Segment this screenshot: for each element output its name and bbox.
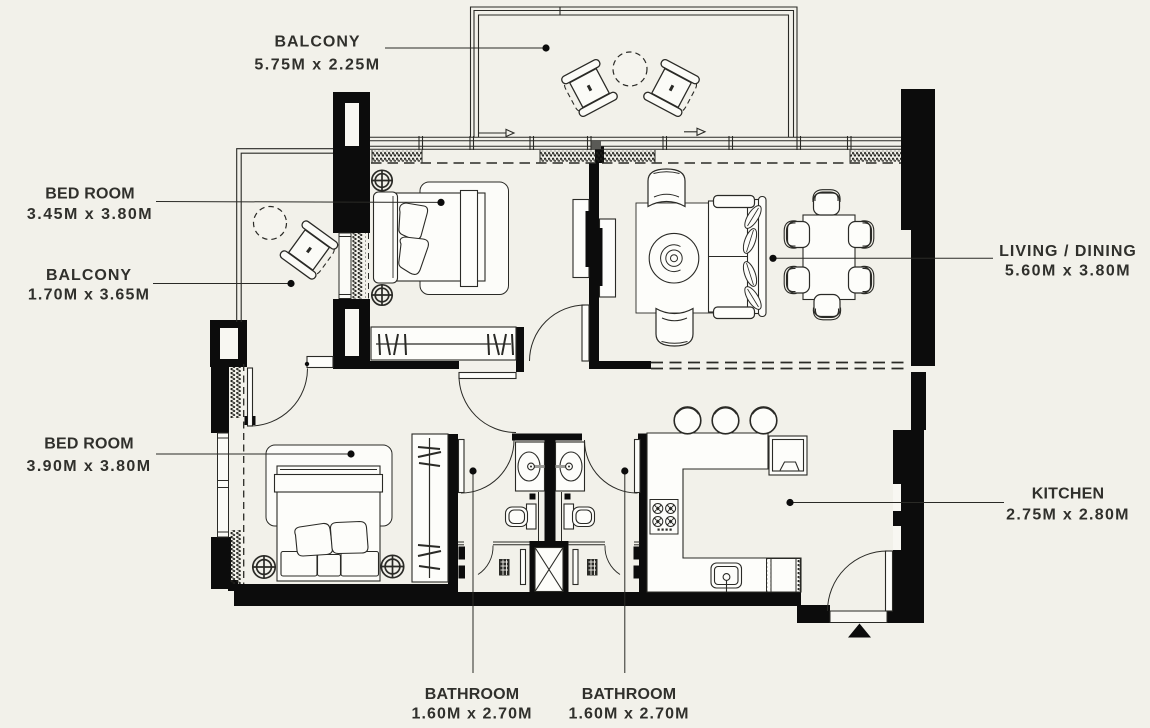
svg-text:5.75M x 2.25M: 5.75M x 2.25M — [254, 57, 380, 74]
svg-text:3.45M x 3.80M: 3.45M x 3.80M — [27, 206, 153, 223]
svg-text:BATHROOM: BATHROOM — [582, 686, 677, 703]
svg-text:1.60M x 2.70M: 1.60M x 2.70M — [568, 706, 689, 723]
svg-text:BALCONY: BALCONY — [46, 267, 132, 284]
svg-text:BALCONY: BALCONY — [274, 34, 360, 51]
svg-text:BED ROOM: BED ROOM — [44, 436, 134, 453]
svg-text:2.75M x 2.80M: 2.75M x 2.80M — [1006, 507, 1130, 524]
svg-text:3.90M x 3.80M: 3.90M x 3.80M — [27, 458, 152, 475]
svg-text:BED ROOM: BED ROOM — [45, 186, 135, 203]
svg-text:1.70M x 3.65M: 1.70M x 3.65M — [28, 287, 150, 304]
svg-text:5.60M x 3.80M: 5.60M x 3.80M — [1005, 263, 1131, 280]
svg-text:BATHROOM: BATHROOM — [425, 686, 520, 703]
svg-text:KITCHEN: KITCHEN — [1032, 486, 1105, 503]
svg-text:1.60M x 2.70M: 1.60M x 2.70M — [411, 706, 532, 723]
svg-text:LIVING / DINING: LIVING / DINING — [999, 243, 1137, 260]
